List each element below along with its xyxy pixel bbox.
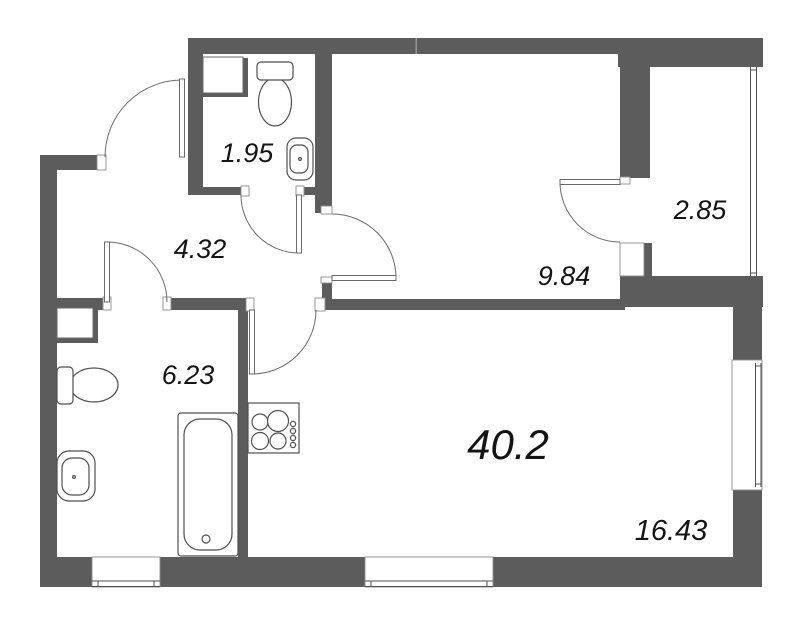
room-area-label-bathroom-small: 1.95 [221,138,275,168]
wall-segment [620,276,763,307]
vent-shaft [57,308,93,338]
room-area-label-bedroom: 9.84 [538,261,591,291]
bedroom-door [332,214,396,281]
door-leaf [105,242,110,302]
door-jamb [246,298,254,311]
room-area-label-hallway: 4.32 [174,234,227,264]
wall-segment [188,38,625,54]
wall-segment [238,310,248,557]
door-leaf [297,195,302,253]
doors [105,79,621,374]
toilet [57,367,118,404]
bathroom-small-door [241,195,302,253]
floor-plan-drawing: 1.95 4.32 2.85 9.84 6.23 40.2 16.43 [0,0,800,628]
wall-segment [620,53,650,178]
door-swing-arc [241,195,299,253]
door-swing-arc [252,310,316,374]
door-jamb [241,186,249,196]
stove-cooktop [248,403,299,453]
door-swing-arc [560,182,620,242]
window [365,557,493,587]
bathtub [178,413,238,556]
room-area-label-bathroom-large: 6.23 [162,360,215,390]
wall-segment [40,155,103,170]
door-swing-arc [332,214,396,278]
door-jamb [620,177,630,184]
wall-segment [167,298,248,310]
room-area-label-balcony: 2.85 [673,195,728,225]
wall-segment [188,40,203,195]
door-leaf [332,276,396,281]
kitchen-door [250,310,317,374]
toilet [257,62,293,126]
balcony-glazing [751,67,757,276]
walls [40,38,763,587]
door-jamb [321,206,332,214]
wall-segment [644,243,652,276]
balcony-door [560,180,620,243]
door-swing-arc [107,242,167,302]
door-swing-arc [105,80,182,157]
door-leaf [250,310,255,374]
total-area-label: 40.2 [467,421,549,468]
floor-plan: 1.95 4.32 2.85 9.84 6.23 40.2 16.43 [0,0,800,628]
door-leaf [180,79,185,157]
wall-segment [317,299,625,310]
wall-segment [300,187,332,195]
wall-segment [40,155,57,587]
sink [57,451,95,501]
door-leaf [560,180,620,185]
vent-shaft [203,57,243,93]
wall-joint-line [416,38,417,54]
door-jamb [315,298,325,311]
wall-segment [733,307,762,360]
entrance-door [105,79,185,157]
window [732,360,762,490]
door-jamb [97,155,106,170]
sink [287,138,313,180]
bathroom-large-door [105,242,168,302]
window [92,557,160,587]
wall-segment [188,187,246,195]
balcony-door-sill [620,243,644,276]
room-area-label-living-kitchen: 16.43 [635,515,708,547]
door-jamb [321,277,332,283]
